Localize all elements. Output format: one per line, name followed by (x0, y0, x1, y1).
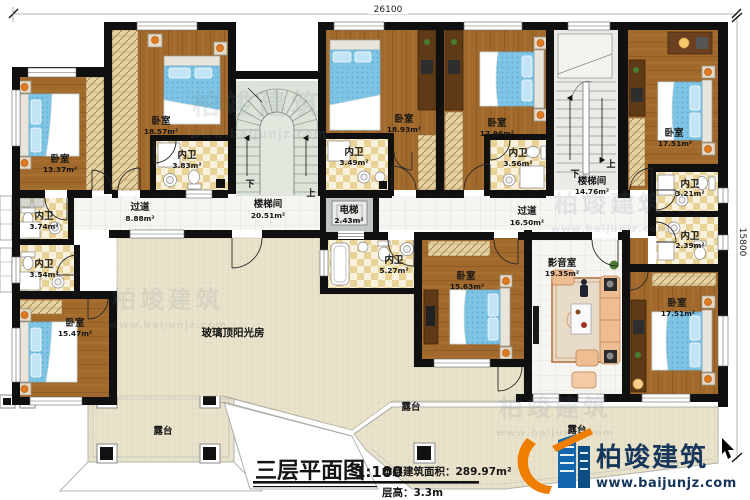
lamp-icon (633, 379, 643, 389)
tv-icon (533, 306, 539, 344)
watermark-url: www.baijunjz.com (496, 428, 614, 439)
toilet-icon (188, 184, 201, 189)
label-bath-527: 内卫 (384, 254, 404, 266)
plant-icon (424, 39, 430, 45)
wardrobe-bedroom-tc2 (445, 112, 463, 190)
window (718, 235, 728, 250)
area-stair-right: 14.76m² (575, 187, 609, 196)
dim-right-label: 15800 (737, 228, 747, 257)
wardrobe-bedroom-br (652, 273, 716, 286)
stair-left-down: 下 (245, 179, 254, 190)
label-bedroom-bl: 卧室 (65, 317, 85, 329)
watermark-text: 柏竣建筑 (192, 88, 324, 121)
shower (520, 166, 544, 188)
left-ledges (0, 196, 12, 292)
area-bedroom-br: 17.51m² (661, 309, 695, 318)
label-bedroom-tc2: 卧室 (487, 117, 507, 129)
cabinet (20, 198, 31, 207)
decor-item (696, 37, 708, 49)
sink-icon (375, 172, 385, 182)
label-terrace-left: 露台 (153, 425, 173, 437)
window (12, 328, 20, 382)
monitor-icon (421, 60, 433, 74)
label-bath-349: 内卫 (344, 146, 364, 158)
area-bedroom-tr: 17.51m² (658, 139, 692, 148)
stats-floor-height: 层高：3.3m (382, 486, 443, 499)
area-corridor-left: 8.88m² (125, 214, 154, 223)
label-bedroom-tr: 卧室 (664, 127, 684, 139)
wardrobe-bedroom-c (428, 241, 490, 256)
stair-right-up: 上 (606, 158, 615, 170)
label-bedroom-tl: 卧室 (50, 153, 70, 165)
wardrobe-bedroom-tc1 (418, 135, 436, 190)
label-elevator: 电梯 (339, 204, 359, 216)
closet-bedroom-tl (86, 77, 104, 190)
duct (216, 179, 225, 188)
elevator-door (338, 231, 364, 239)
watermark-text: 柏竣建筑 (112, 286, 224, 314)
area-bath-349: 3.49m² (339, 158, 368, 167)
label-bath-383: 内卫 (177, 149, 197, 161)
monitor-icon (631, 88, 643, 102)
area-bedroom-tl2: 18.57m² (144, 127, 178, 136)
brand-name: 柏竣建筑 (596, 442, 708, 473)
area-media-room: 19.35m² (545, 269, 579, 278)
window (28, 68, 76, 77)
label-bedroom-tc1: 卧室 (394, 113, 414, 125)
watermark-url: www.baijunjz.com (189, 127, 328, 141)
pavilion-roof (60, 462, 262, 491)
label-corridor-left: 过道 (130, 201, 150, 213)
desk-bedroom-br (631, 300, 646, 392)
area-bedroom-tc2: 17.96m² (480, 129, 514, 138)
label-bath-354: 内卫 (34, 258, 54, 270)
armchair (576, 350, 598, 366)
floorplan-page: 26100 15800 (0, 0, 750, 500)
window (718, 188, 728, 203)
area-bedroom-tl: 13.37m² (43, 165, 77, 174)
area-bedroom-bl: 15.47m² (58, 329, 92, 338)
area-bath-321: 3.21m² (675, 189, 704, 198)
bed-bedroom-tl (18, 81, 79, 169)
duct (379, 181, 387, 189)
window (320, 250, 328, 276)
plant-icon (635, 352, 641, 358)
label-terrace-mid: 露台 (401, 401, 421, 413)
window (12, 90, 20, 146)
watermark-text: 柏竣建筑 (499, 394, 611, 422)
label-bedroom-c: 卧室 (456, 270, 476, 282)
floor-vestibule (630, 238, 648, 264)
drawing-title: 三层平面图 (255, 459, 365, 484)
label-corridor-main: 过道 (517, 205, 537, 217)
stats-area: 本层建筑面积：289.97m² (382, 465, 512, 478)
monitor-icon (448, 60, 460, 74)
window (137, 22, 197, 30)
cabinet (33, 198, 44, 207)
window (30, 397, 82, 405)
area-bath-527: 5.27m² (379, 266, 408, 275)
armchair (572, 372, 596, 388)
area-bedroom-tc1: 18.93m² (387, 125, 421, 134)
window (568, 22, 610, 30)
window (334, 22, 384, 30)
label-bedroom-tl2: 卧室 (151, 115, 171, 127)
window (464, 22, 522, 30)
plant-icon (451, 39, 457, 45)
person-figure (581, 279, 587, 285)
window (130, 230, 184, 238)
sink-icon (358, 242, 368, 252)
floorplan-drawing: 26100 15800 (0, 0, 750, 500)
shower (658, 242, 674, 260)
label-stair-left: 楼梯间 (254, 198, 283, 210)
label-bath-374: 内卫 (34, 210, 54, 222)
area-bedroom-c: 15.63m² (450, 282, 484, 291)
label-bath-356: 内卫 (508, 147, 528, 159)
label-stair-right: 楼梯间 (578, 175, 607, 187)
toilet-icon (527, 147, 540, 158)
window (434, 359, 490, 367)
area-bath-354: 3.54m² (29, 270, 58, 279)
area-bath-383: 3.83m² (172, 161, 201, 170)
cursor-icon (722, 438, 734, 459)
wardrobe-bedroom-tr (629, 118, 645, 186)
watermark-text: 柏竣建筑 (554, 190, 666, 218)
coffee-table (571, 304, 591, 334)
area-corridor-main: 16.50m² (510, 218, 544, 227)
area-stair-left: 20.51m² (251, 211, 285, 220)
label-bedroom-br: 卧室 (667, 297, 687, 309)
area-bath-374: 3.74m² (29, 222, 58, 231)
window (12, 257, 20, 283)
window (186, 190, 212, 198)
lamp-icon (679, 38, 689, 48)
area-elevator: 2.43m² (334, 216, 363, 225)
monitor-icon (633, 320, 644, 334)
label-sunroom: 玻璃顶阳光房 (202, 326, 265, 339)
bed-bedroom-tc1 (330, 40, 380, 130)
stair-right-down: 下 (570, 169, 579, 180)
tv-icon (426, 306, 435, 326)
plant-icon (633, 67, 639, 73)
watermark-url: www.baijunjz.com (551, 224, 669, 235)
window (718, 316, 728, 366)
window (642, 394, 690, 402)
label-media-room: 影音室 (548, 257, 577, 269)
dim-top-label: 26100 (374, 5, 403, 15)
brand-website: www.baijunjz.com (596, 476, 737, 491)
area-bath-239: 2.39m² (675, 241, 704, 250)
stair-left-up: 上 (306, 187, 315, 199)
area-bath-356: 3.56m² (503, 159, 532, 168)
wardrobe-bedroom-tl2 (112, 30, 138, 190)
